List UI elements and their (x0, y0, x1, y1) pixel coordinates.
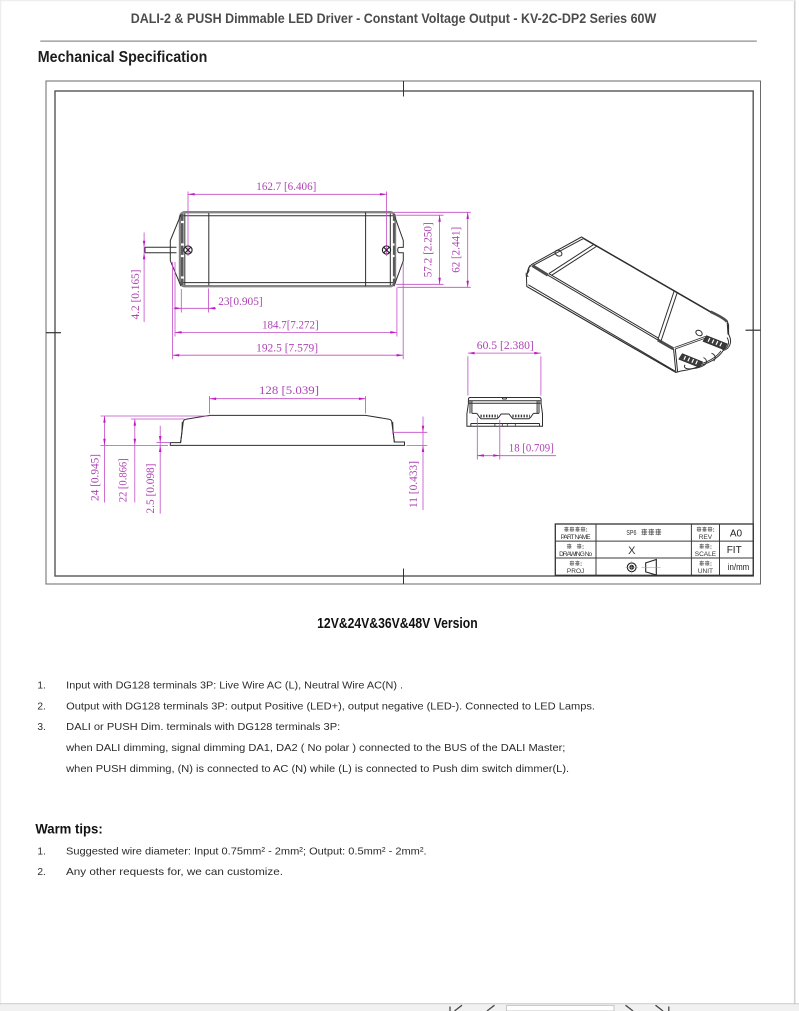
svg-text:23[0.905]: 23[0.905] (218, 294, 263, 308)
svg-text:192.5 [7.579]: 192.5 [7.579] (256, 340, 318, 354)
svg-text:SCALE: SCALE (695, 551, 717, 558)
svg-text:57.2 [2.250]: 57.2 [2.250] (421, 222, 435, 277)
svg-text:PART NAME: PART NAME (561, 534, 592, 541)
svg-text:in/mm: in/mm (728, 562, 750, 573)
svg-text:A0: A0 (730, 528, 743, 539)
svg-text:128 [5.039]: 128 [5.039] (259, 383, 319, 397)
svg-text:PROJ: PROJ (567, 568, 584, 575)
svg-text:Mechanical Specification: Mechanical Specification (38, 49, 208, 66)
svg-text:2.5 [0.098]: 2.5 [0.098] (143, 464, 157, 514)
svg-text:FIT: FIT (727, 545, 742, 556)
svg-text:when DALI dimming, signal dimm: when DALI dimming, signal dimming DA1, D… (65, 743, 565, 754)
svg-text:1.: 1. (37, 681, 46, 692)
svg-text:60.5 [2.380]: 60.5 [2.380] (477, 338, 534, 352)
svg-text:X: X (628, 545, 636, 557)
svg-text:2.: 2. (37, 701, 46, 712)
svg-text:184.7[7.272]: 184.7[7.272] (262, 318, 319, 332)
svg-text:Warm tips:: Warm tips: (35, 821, 102, 837)
svg-text:UNIT: UNIT (698, 568, 713, 575)
svg-text:162.7 [6.406]: 162.7 [6.406] (256, 179, 316, 193)
svg-text:12V&24V&36V&48V Version: 12V&24V&36V&48V Version (317, 615, 478, 632)
svg-text:DALI or PUSH Dim. terminals wi: DALI or PUSH Dim. terminals with DG128 t… (66, 722, 340, 733)
svg-text:DALI-2 & PUSH Dimmable LED Dri: DALI-2 & PUSH Dimmable LED Driver - Cons… (131, 11, 657, 26)
svg-text:22 [0.866]: 22 [0.866] (116, 458, 130, 502)
svg-text:when PUSH dimming, (N) is conn: when PUSH dimming, (N) is connected to A… (65, 764, 569, 775)
svg-text:62 [2.441]: 62 [2.441] (448, 227, 462, 273)
svg-text:2.: 2. (37, 867, 46, 878)
svg-text:SP6: SP6 (626, 528, 636, 537)
svg-text:Any other requests for, we can: Any other requests for, we can customize… (66, 867, 283, 878)
svg-text:4.2 [0.165]: 4.2 [0.165] (128, 270, 142, 320)
svg-text:18 [0.709]: 18 [0.709] (509, 441, 554, 455)
svg-text:DRAWING No: DRAWING No (559, 551, 592, 558)
svg-text:1.: 1. (37, 846, 46, 857)
svg-text:Suggested wire diameter: Input: Suggested wire diameter: Input 0.75mm² -… (66, 846, 427, 857)
svg-text:Input with DG128 terminals 3P:: Input with DG128 terminals 3P: Live Wire… (66, 681, 403, 692)
svg-text:REV: REV (699, 534, 713, 541)
svg-text:24 [0.945]: 24 [0.945] (87, 454, 101, 501)
svg-text:11 [0.433]: 11 [0.433] (406, 461, 420, 508)
svg-text:3.: 3. (37, 722, 46, 733)
svg-text:Output with DG128 terminals 3P: Output with DG128 terminals 3P: output P… (66, 701, 595, 712)
